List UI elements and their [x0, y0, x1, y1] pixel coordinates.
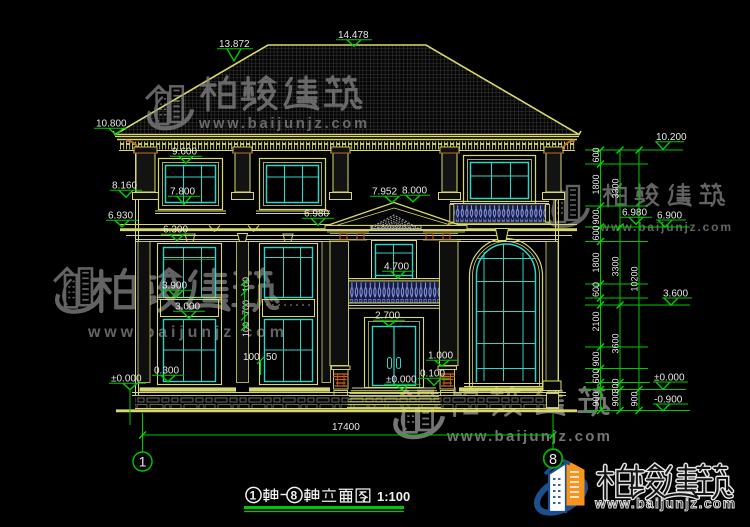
svg-text:600: 600 [591, 147, 601, 162]
svg-text:3600: 3600 [611, 333, 621, 353]
svg-text:300: 300 [611, 378, 621, 393]
svg-text:3300: 3300 [611, 178, 621, 198]
svg-text:8: 8 [291, 489, 298, 503]
svg-text:50: 50 [266, 352, 278, 363]
svg-text:700: 700 [241, 300, 251, 315]
svg-text:900: 900 [611, 391, 621, 406]
svg-text:1:100: 1:100 [377, 489, 410, 504]
svg-text:900: 900 [591, 209, 601, 224]
svg-text:1800: 1800 [591, 174, 601, 194]
svg-text:900: 900 [591, 391, 601, 406]
svg-text:10200: 10200 [630, 266, 640, 291]
svg-text:2100: 2100 [591, 311, 601, 331]
svg-text:3300: 3300 [611, 256, 621, 276]
svg-text:600: 600 [591, 368, 601, 383]
svg-text:100: 100 [243, 352, 260, 363]
svg-text:1: 1 [250, 489, 257, 503]
svg-text:600: 600 [591, 225, 601, 240]
svg-text:www.baijunjz.com: www.baijunjz.com [594, 496, 735, 511]
svg-text:600: 600 [591, 282, 601, 297]
svg-text:900: 900 [630, 391, 640, 406]
svg-text:1: 1 [139, 454, 147, 470]
svg-text:8: 8 [549, 452, 557, 468]
svg-text:1800: 1800 [591, 252, 601, 272]
svg-text:900: 900 [591, 351, 601, 366]
svg-text:17400: 17400 [332, 422, 360, 433]
